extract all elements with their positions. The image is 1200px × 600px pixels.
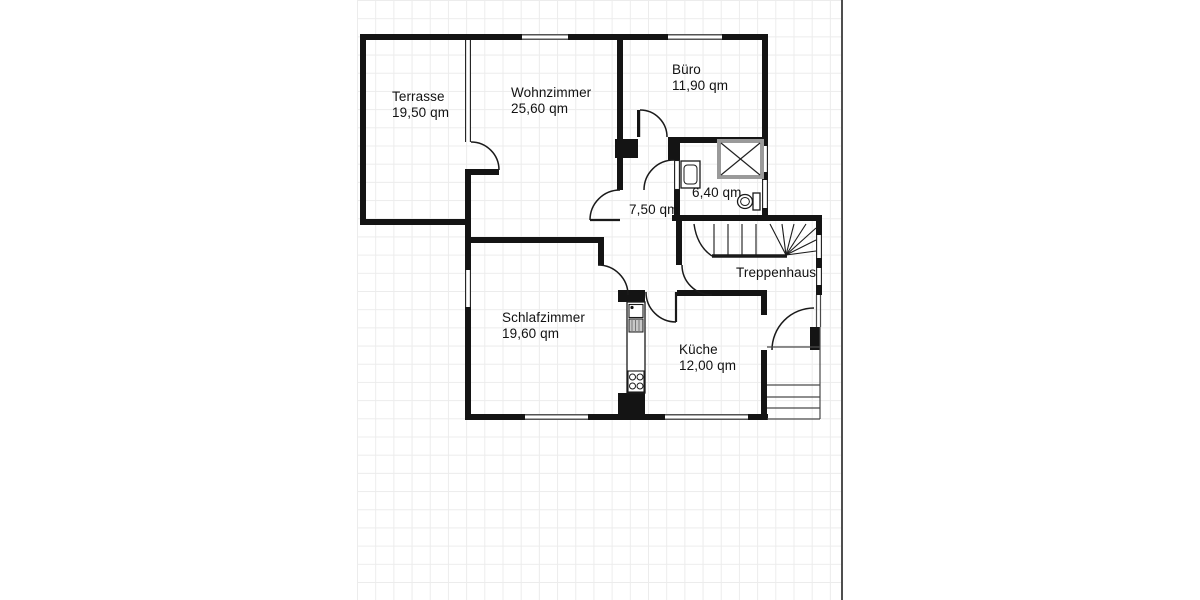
room-label-wohnzimmer: Wohnzimmer 25,60 qm [511, 85, 591, 116]
door-leaf-buero [637, 110, 640, 137]
wall-terrasse-door-stub [465, 169, 499, 175]
window-treppenhaus-right-a [816, 235, 822, 258]
kitchen-appliance [629, 319, 643, 332]
room-label-kueche: Küche 12,00 qm [679, 342, 736, 373]
window-terrasse-divider [465, 40, 471, 142]
door-arc-building-entrance [772, 308, 814, 350]
room-label-schlafzimmer: Schlafzimmer 19,60 qm [502, 310, 585, 341]
wall-treppenhaus-right-a [816, 217, 822, 235]
wall-flur-left [598, 237, 604, 265]
wall-kueche-top [677, 290, 767, 296]
door-arc-wohnzimmer [590, 190, 620, 220]
room-area: 25,60 qm [511, 101, 591, 117]
wall-right-a [762, 34, 768, 146]
kitchen-counter [627, 302, 645, 393]
room-area: 19,50 qm [392, 105, 449, 121]
window-wohnzimmer-top [522, 34, 568, 40]
shaft-symbol [719, 141, 762, 177]
wall-right-c [762, 208, 768, 217]
window-bad-right-b [762, 180, 768, 208]
room-label-bad: 6,40 qm [692, 185, 741, 201]
door-arc-bad [644, 160, 674, 190]
wall-terrasse-bottom [360, 219, 471, 225]
wall-bad-left-top [668, 137, 680, 160]
wall-schlafzimmer-left-b [465, 307, 471, 420]
wall-treppenhaus-right-b [816, 258, 822, 268]
door-arc-kueche [646, 292, 676, 322]
room-area: 7,50 qm [629, 202, 678, 218]
wall-terrasse-divider-top [465, 34, 471, 40]
window-kueche-bottom [665, 414, 748, 420]
kitchen-stove [628, 371, 644, 392]
room-area: 6,40 qm [692, 185, 741, 201]
door-arc-terrasse [471, 142, 499, 170]
room-name: Schlafzimmer [502, 310, 585, 326]
room-label-buero: Büro 11,90 qm [672, 62, 728, 93]
window-buero-top [668, 34, 722, 40]
wall-schlafzimmer-left-a [465, 242, 471, 270]
wall-kitchen-strip-bottom [618, 393, 645, 420]
room-area: 12,00 qm [679, 358, 736, 374]
room-label-terrasse: Terrasse 19,50 qm [392, 89, 449, 120]
wall-flur-upper-left [617, 158, 623, 190]
door-leaf-bad [675, 161, 680, 190]
wall-bottom-a [465, 414, 525, 420]
window-schlafzimmer-left [465, 270, 471, 307]
wall-kueche-right-a [761, 296, 767, 315]
door-arc-buero [640, 110, 667, 137]
washbasin [681, 161, 700, 188]
wall-wohnzimmer-buero-divider [617, 40, 623, 139]
staircase [694, 224, 816, 256]
wall-terrasse-divider-low [465, 175, 471, 242]
room-label-flur: 7,50 qm [629, 202, 678, 218]
wall-treppenhaus-top [672, 215, 822, 221]
wall-kueche-right-b [761, 350, 767, 420]
window-treppenhaus-right-b [816, 268, 822, 285]
kitchen-sink [629, 305, 643, 318]
room-area: 19,60 qm [502, 326, 585, 342]
room-label-treppenhaus: Treppenhaus [736, 265, 816, 281]
wall-treppenhaus-left [676, 221, 682, 265]
wall-pillar [615, 139, 638, 158]
room-name: Küche [679, 342, 736, 358]
wall-schlafzimmer-top [465, 237, 603, 243]
wall-treppenhaus-right-c [816, 285, 822, 295]
room-area: 11,90 qm [672, 78, 728, 94]
room-name: Wohnzimmer [511, 85, 591, 101]
window-schlafzimmer-bottom [525, 414, 588, 420]
room-name: Büro [672, 62, 728, 78]
wall-kitchen-strip-top [618, 290, 645, 302]
wall-left [360, 34, 366, 225]
room-name: Terrasse [392, 89, 449, 105]
stair-curved-stringer [694, 224, 712, 256]
floorplan-drawing [0, 0, 1200, 600]
room-name: Treppenhaus [736, 265, 816, 281]
stair-winder-tread [786, 224, 794, 255]
